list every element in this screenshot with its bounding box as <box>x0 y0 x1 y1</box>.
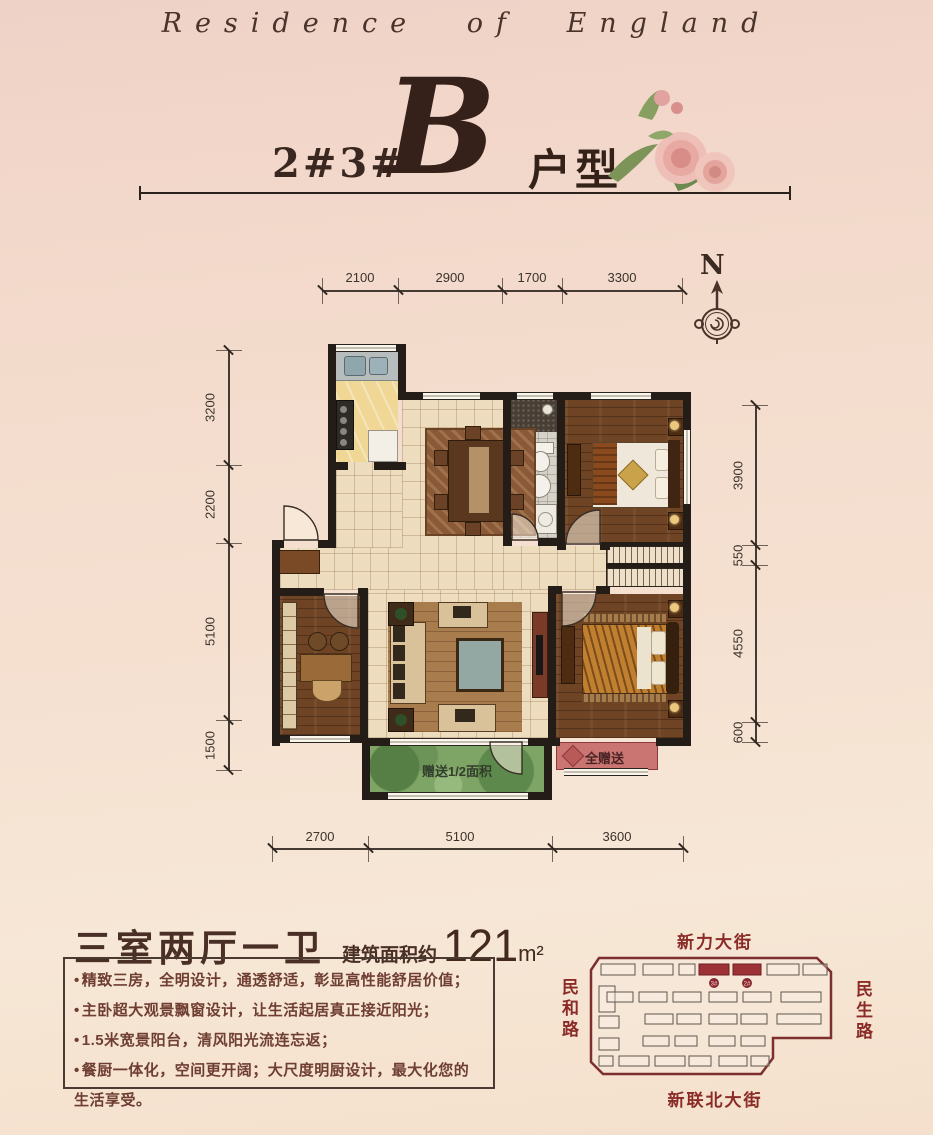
floor-plan: 赠送1/2面积 全赠送 <box>270 344 691 802</box>
feature-list: 精致三房，全明设计，通透舒适，彰显高性能舒居价值； 主卧超大观景飘窗设计，让生活… <box>74 966 484 1116</box>
dim-top-4: 3300 <box>596 270 648 285</box>
feature-item: 主卧超大观景飘窗设计，让生活起居真正接近阳光； <box>74 996 484 1026</box>
dim-left-2: 2200 <box>203 479 218 531</box>
floorplan-poster: { "header": { "brand": "Residence of Eng… <box>0 0 933 1135</box>
street-bottom-label: 新联北大街 <box>600 1086 830 1111</box>
feature-item: 精致三房，全明设计，通透舒适，彰显高性能舒居价值； <box>74 966 484 996</box>
dim-top-1: 2100 <box>334 270 386 285</box>
brand-script-title: Residence of England <box>0 8 933 39</box>
dim-line-right <box>755 405 757 742</box>
rule-end-tick <box>139 186 141 200</box>
street-top-label: 新力大街 <box>600 928 830 953</box>
dim-right-3: 4550 <box>731 618 746 670</box>
rose-decoration <box>578 86 738 198</box>
building-2-label: 2# <box>744 982 751 988</box>
compass-icon <box>690 280 744 344</box>
dim-bottom-1: 2700 <box>294 829 346 844</box>
area-unit: m² <box>518 941 544 967</box>
dim-bottom-2: 5100 <box>434 829 486 844</box>
dim-right-2: 550 <box>731 530 746 582</box>
dim-right-1: 3900 <box>731 450 746 502</box>
feature-item: 1.5米宽景阳台，清风阳光流连忘返； <box>74 1026 484 1056</box>
dim-top-2: 2900 <box>424 270 476 285</box>
dim-left-4: 1500 <box>203 720 218 772</box>
dim-left-1: 3200 <box>203 382 218 434</box>
dim-bottom-3: 3600 <box>591 829 643 844</box>
dim-left-3: 5100 <box>203 606 218 658</box>
feature-item: 餐厨一体化，空间更开阔；大尺度明厨设计，最大化您的生活享受。 <box>74 1056 484 1116</box>
compass-north-label: N <box>700 250 725 281</box>
site-map: 3# 2# <box>585 952 847 1082</box>
dim-line-left <box>228 350 230 770</box>
unit-letter: B <box>385 62 497 194</box>
dim-right-4: 600 <box>731 707 746 759</box>
door-swings <box>270 344 691 802</box>
street-left-label: 民和路 <box>556 978 581 1041</box>
rule-end-tick <box>789 186 791 200</box>
dim-top-3: 1700 <box>506 270 558 285</box>
dim-line-bottom <box>272 848 683 850</box>
street-right-label: 民生路 <box>850 980 875 1043</box>
highlighted-building-2 <box>733 964 761 975</box>
building-3-label: 3# <box>711 982 718 988</box>
highlighted-building-3 <box>699 964 729 975</box>
